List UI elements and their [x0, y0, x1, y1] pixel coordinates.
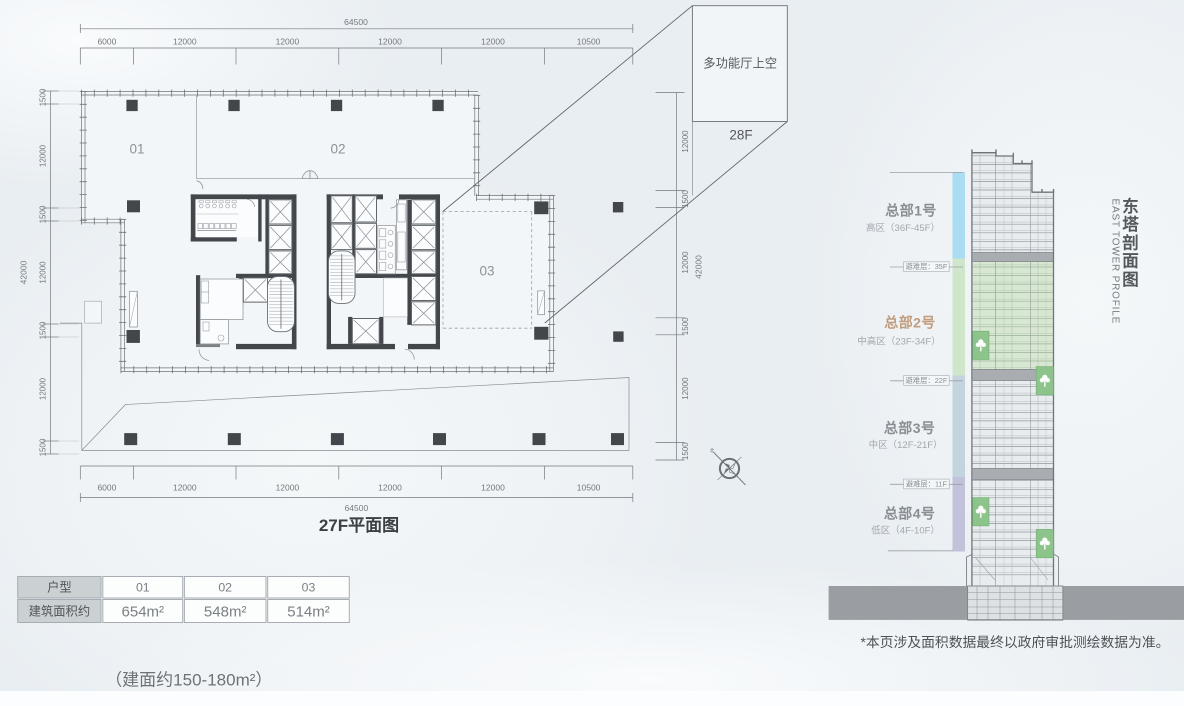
- svg-text:总部1号: 总部1号: [885, 201, 936, 221]
- svg-text:12000: 12000: [680, 130, 691, 153]
- svg-text:6000: 6000: [97, 36, 116, 48]
- svg-text:（建面约150-180m²）: （建面约150-180m²）: [105, 666, 272, 691]
- svg-text:514m²: 514m²: [287, 601, 330, 622]
- svg-text:1500: 1500: [38, 88, 49, 106]
- svg-text:12000: 12000: [173, 36, 197, 48]
- svg-text:12000: 12000: [481, 482, 505, 494]
- svg-text:03: 03: [302, 578, 316, 596]
- svg-text:10500: 10500: [577, 482, 601, 494]
- svg-text:02: 02: [218, 578, 232, 596]
- svg-text:27F平面图: 27F平面图: [319, 511, 399, 536]
- svg-text:12000: 12000: [276, 36, 300, 48]
- svg-text:1500: 1500: [38, 321, 49, 339]
- svg-text:12000: 12000: [378, 36, 402, 48]
- svg-text:01: 01: [136, 578, 150, 596]
- svg-text:中区（12F-21F）: 中区（12F-21F）: [869, 437, 943, 451]
- svg-text:12000: 12000: [680, 377, 691, 400]
- svg-text:12000: 12000: [276, 482, 300, 494]
- svg-text:12000: 12000: [378, 482, 402, 494]
- svg-text:建筑面积约: 建筑面积约: [29, 602, 91, 620]
- svg-text:总部4号: 总部4号: [884, 504, 935, 524]
- svg-text:高区（36F-45F）: 高区（36F-45F）: [866, 220, 940, 234]
- svg-text:42000: 42000: [18, 260, 30, 284]
- svg-text:北: 北: [710, 447, 715, 454]
- svg-text:28F: 28F: [729, 124, 752, 144]
- svg-text:低区（4F-10F）: 低区（4F-10F）: [871, 523, 940, 537]
- svg-text:避难层：22F: 避难层：22F: [906, 376, 948, 386]
- svg-text:12000: 12000: [481, 36, 505, 48]
- svg-text:多功能厅上空: 多功能厅上空: [703, 54, 777, 72]
- svg-text:01: 01: [129, 138, 144, 158]
- svg-text:*本页涉及面积数据最终以政府审批测绘数据为准。: *本页涉及面积数据最终以政府审批测绘数据为准。: [861, 631, 1170, 651]
- svg-text:1500: 1500: [680, 190, 691, 208]
- svg-text:6000: 6000: [97, 482, 116, 494]
- svg-text:02: 02: [330, 138, 345, 158]
- svg-text:1500: 1500: [680, 317, 691, 335]
- svg-text:12000: 12000: [173, 482, 197, 494]
- svg-text:1500: 1500: [38, 205, 49, 223]
- svg-text:64500: 64500: [344, 16, 368, 28]
- svg-text:EAST TOWER PROFILE: EAST TOWER PROFILE: [1110, 199, 1125, 325]
- svg-text:1500: 1500: [38, 438, 49, 456]
- svg-text:42000: 42000: [693, 255, 705, 279]
- svg-text:10500: 10500: [577, 36, 601, 48]
- svg-text:12000: 12000: [38, 144, 49, 167]
- svg-text:户型: 户型: [47, 578, 72, 596]
- svg-text:03: 03: [479, 260, 494, 280]
- svg-text:654m²: 654m²: [122, 601, 165, 622]
- svg-text:1500: 1500: [680, 442, 691, 460]
- svg-text:12000: 12000: [38, 377, 49, 400]
- svg-text:避难层：11F: 避难层：11F: [906, 480, 948, 490]
- svg-text:避难层：35F: 避难层：35F: [906, 262, 948, 272]
- svg-text:548m²: 548m²: [204, 601, 247, 622]
- svg-text:12000: 12000: [38, 261, 49, 284]
- svg-text:总部2号: 总部2号: [884, 313, 935, 333]
- svg-text:中高区（23F-34F）: 中高区（23F-34F）: [857, 334, 940, 348]
- svg-text:总部3号: 总部3号: [884, 418, 935, 438]
- svg-text:12000: 12000: [680, 251, 691, 274]
